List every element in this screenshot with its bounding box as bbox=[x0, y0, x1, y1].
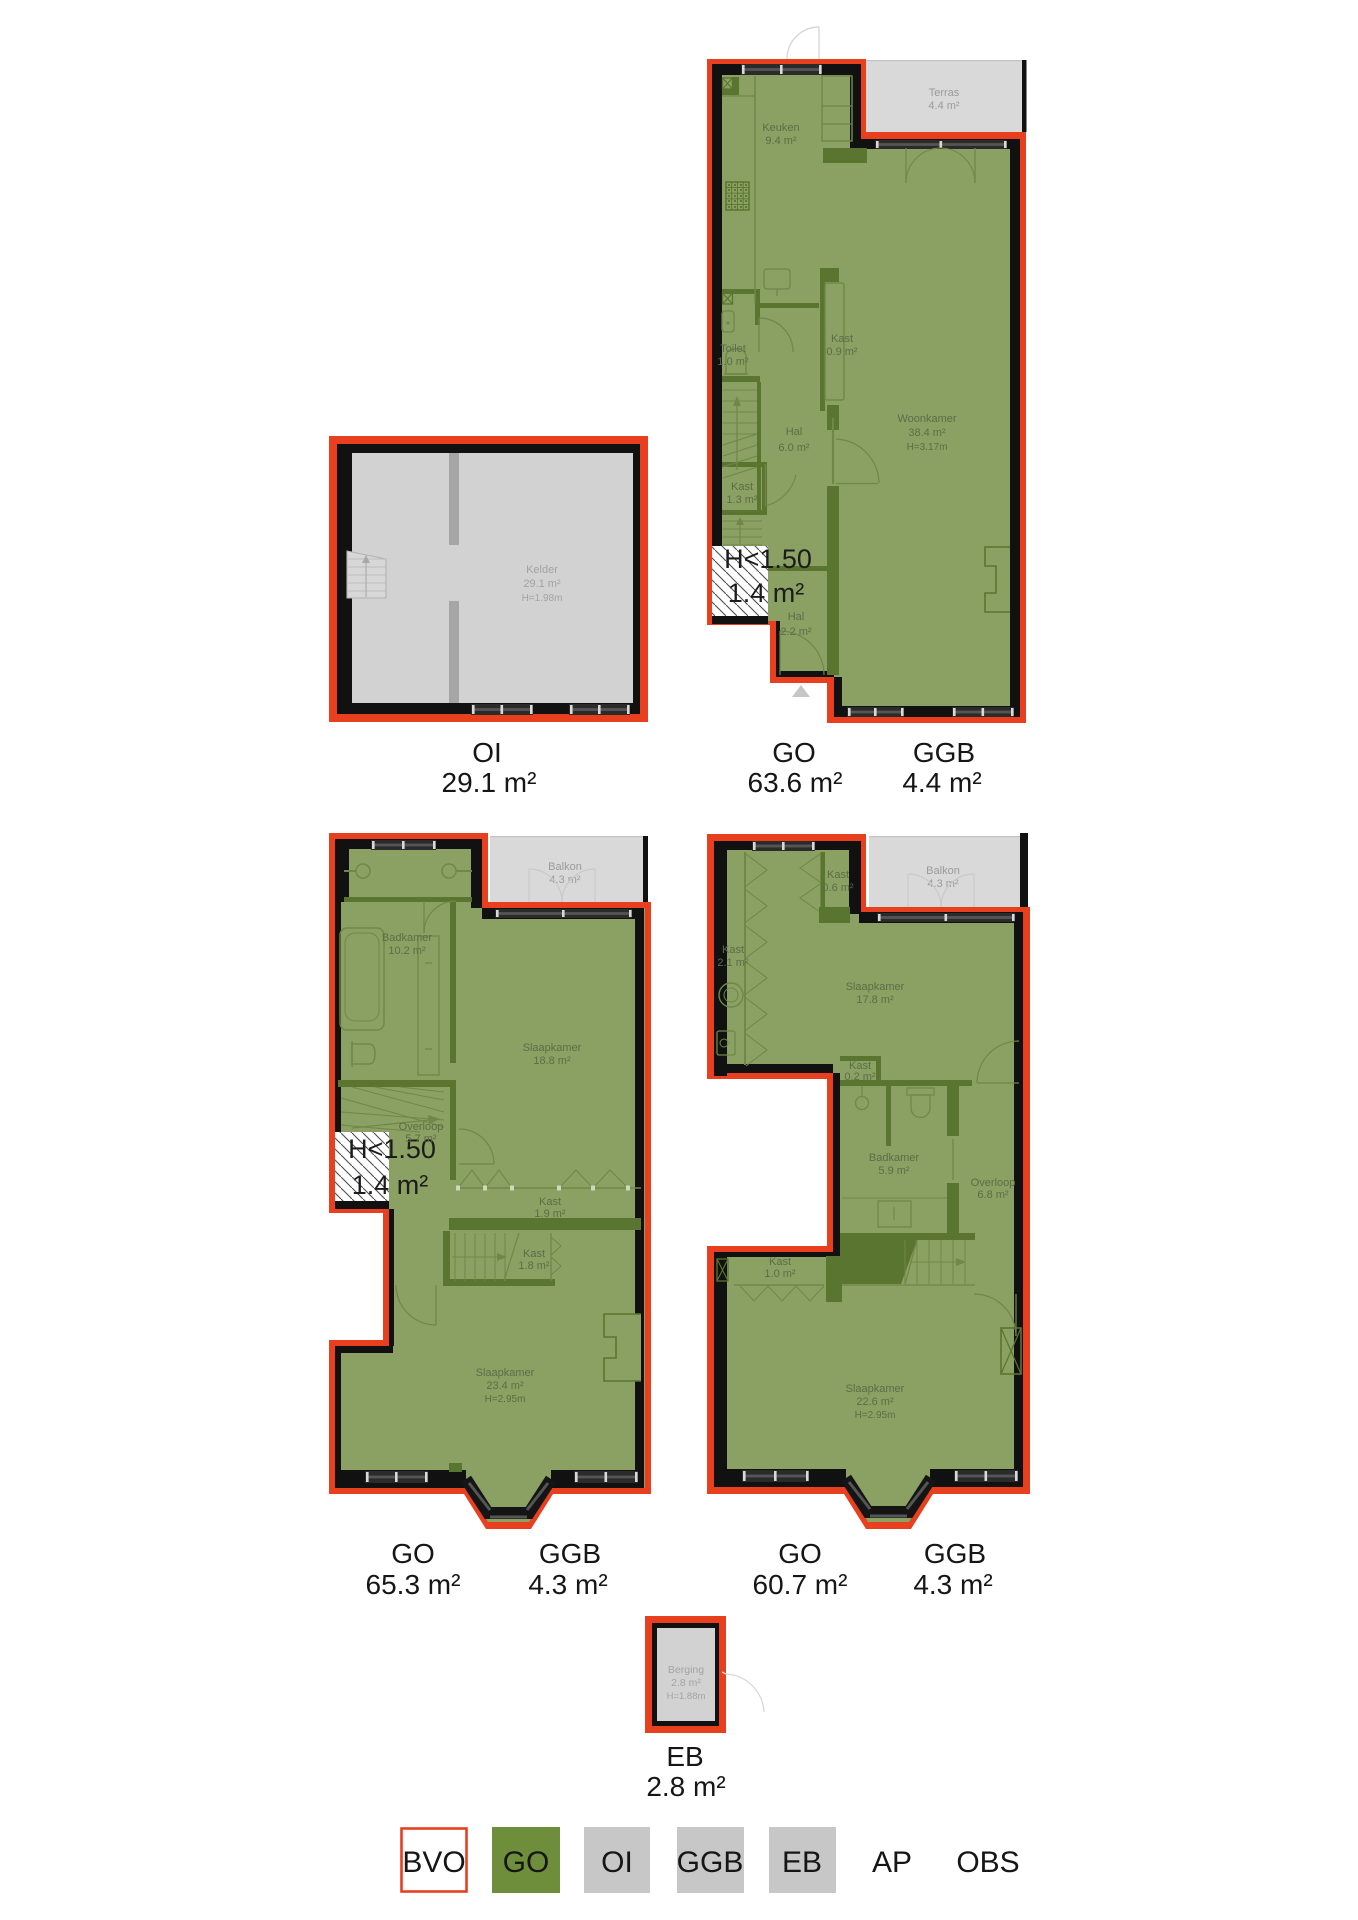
svg-text:29.1 m²: 29.1 m² bbox=[442, 767, 537, 798]
svg-text:GO: GO bbox=[391, 1538, 435, 1569]
svg-text:6.0 m²: 6.0 m² bbox=[778, 442, 810, 454]
svg-text:H=3.17m: H=3.17m bbox=[907, 442, 948, 453]
svg-text:1.0 m²: 1.0 m² bbox=[764, 1268, 796, 1280]
svg-text:Balkon: Balkon bbox=[548, 861, 582, 873]
svg-text:GGB: GGB bbox=[924, 1538, 986, 1569]
svg-text:10.2 m²: 10.2 m² bbox=[388, 945, 426, 957]
svg-text:Kast: Kast bbox=[769, 1256, 791, 1268]
svg-text:4.4 m²: 4.4 m² bbox=[902, 767, 981, 798]
svg-text:Kast: Kast bbox=[539, 1196, 561, 1208]
svg-text:1.4 m²: 1.4 m² bbox=[352, 1170, 429, 1200]
svg-text:Kelder: Kelder bbox=[526, 564, 558, 576]
svg-text:Kast: Kast bbox=[523, 1248, 545, 1260]
svg-text:GO: GO bbox=[772, 737, 816, 768]
svg-text:GGB: GGB bbox=[913, 737, 975, 768]
svg-text:OI: OI bbox=[472, 737, 502, 768]
svg-text:0.2 m²: 0.2 m² bbox=[844, 1071, 876, 1083]
svg-text:OI: OI bbox=[601, 1846, 633, 1879]
svg-text:1.9 m²: 1.9 m² bbox=[534, 1208, 566, 1220]
svg-text:Berging: Berging bbox=[668, 1664, 704, 1676]
svg-text:22.6 m²: 22.6 m² bbox=[856, 1396, 894, 1408]
svg-text:0.6 m²: 0.6 m² bbox=[822, 882, 854, 894]
svg-text:H=2.95m: H=2.95m bbox=[485, 1394, 526, 1405]
svg-text:60.7 m²: 60.7 m² bbox=[753, 1569, 848, 1600]
svg-text:6.8 m²: 6.8 m² bbox=[977, 1189, 1009, 1201]
svg-text:H=1.88m: H=1.88m bbox=[667, 1691, 706, 1702]
svg-text:Woonkamer: Woonkamer bbox=[897, 413, 956, 425]
svg-text:Balkon: Balkon bbox=[926, 865, 960, 877]
svg-text:Terras: Terras bbox=[929, 87, 960, 99]
svg-text:GO: GO bbox=[503, 1846, 550, 1879]
svg-text:H=1.98m: H=1.98m bbox=[522, 593, 563, 604]
svg-text:4.3 m²: 4.3 m² bbox=[528, 1569, 607, 1600]
svg-text:Hal: Hal bbox=[788, 611, 805, 623]
svg-text:OBS: OBS bbox=[956, 1846, 1019, 1879]
svg-text:Overloop: Overloop bbox=[399, 1121, 444, 1133]
svg-text:Kast: Kast bbox=[827, 869, 849, 881]
svg-text:9.4 m²: 9.4 m² bbox=[765, 135, 797, 147]
svg-text:2.2 m²: 2.2 m² bbox=[780, 626, 812, 638]
svg-text:1.4 m²: 1.4 m² bbox=[728, 578, 805, 608]
svg-text:GO: GO bbox=[778, 1538, 822, 1569]
svg-text:AP: AP bbox=[872, 1846, 912, 1879]
svg-text:23.4 m²: 23.4 m² bbox=[486, 1380, 524, 1392]
svg-text:1.0 m²: 1.0 m² bbox=[717, 356, 749, 368]
svg-text:38.4 m²: 38.4 m² bbox=[908, 427, 946, 439]
svg-text:2.1 m²: 2.1 m² bbox=[717, 957, 749, 969]
svg-text:Slaapkamer: Slaapkamer bbox=[476, 1367, 535, 1379]
svg-text:2.8 m²: 2.8 m² bbox=[671, 1677, 701, 1689]
svg-text:GGB: GGB bbox=[677, 1846, 744, 1879]
svg-text:18.8 m²: 18.8 m² bbox=[533, 1055, 571, 1067]
svg-text:Kast: Kast bbox=[722, 944, 744, 956]
svg-text:Badkamer: Badkamer bbox=[382, 932, 432, 944]
svg-text:4.4 m²: 4.4 m² bbox=[928, 100, 960, 112]
svg-text:65.3 m²: 65.3 m² bbox=[366, 1569, 461, 1600]
svg-text:H=2.95m: H=2.95m bbox=[855, 1410, 896, 1421]
svg-text:H<1.50: H<1.50 bbox=[724, 544, 812, 574]
svg-text:Kast: Kast bbox=[731, 481, 753, 493]
svg-text:Toilet: Toilet bbox=[720, 343, 746, 355]
svg-text:Keuken: Keuken bbox=[762, 122, 799, 134]
svg-text:GGB: GGB bbox=[539, 1538, 601, 1569]
svg-text:Badkamer: Badkamer bbox=[869, 1152, 919, 1164]
svg-text:EB: EB bbox=[666, 1741, 703, 1772]
svg-text:5.9 m²: 5.9 m² bbox=[878, 1165, 910, 1177]
svg-text:Hal: Hal bbox=[786, 426, 803, 438]
svg-text:BVO: BVO bbox=[402, 1846, 465, 1879]
svg-text:EB: EB bbox=[782, 1846, 822, 1879]
svg-text:4.3 m²: 4.3 m² bbox=[913, 1569, 992, 1600]
svg-text:5.7 m²: 5.7 m² bbox=[405, 1133, 437, 1145]
svg-text:Overloop: Overloop bbox=[971, 1177, 1016, 1189]
svg-text:Slaapkamer: Slaapkamer bbox=[523, 1042, 582, 1054]
svg-text:Slaapkamer: Slaapkamer bbox=[846, 1383, 905, 1395]
svg-text:1.3 m²: 1.3 m² bbox=[726, 494, 758, 506]
svg-text:63.6 m²: 63.6 m² bbox=[748, 767, 843, 798]
svg-text:Kast: Kast bbox=[831, 333, 853, 345]
svg-text:Slaapkamer: Slaapkamer bbox=[846, 981, 905, 993]
svg-text:29.1 m²: 29.1 m² bbox=[523, 578, 561, 590]
svg-text:17.8 m²: 17.8 m² bbox=[856, 994, 894, 1006]
svg-text:2.8 m²: 2.8 m² bbox=[646, 1771, 725, 1802]
svg-text:1.8 m²: 1.8 m² bbox=[518, 1260, 550, 1272]
svg-text:0.9 m²: 0.9 m² bbox=[826, 346, 858, 358]
